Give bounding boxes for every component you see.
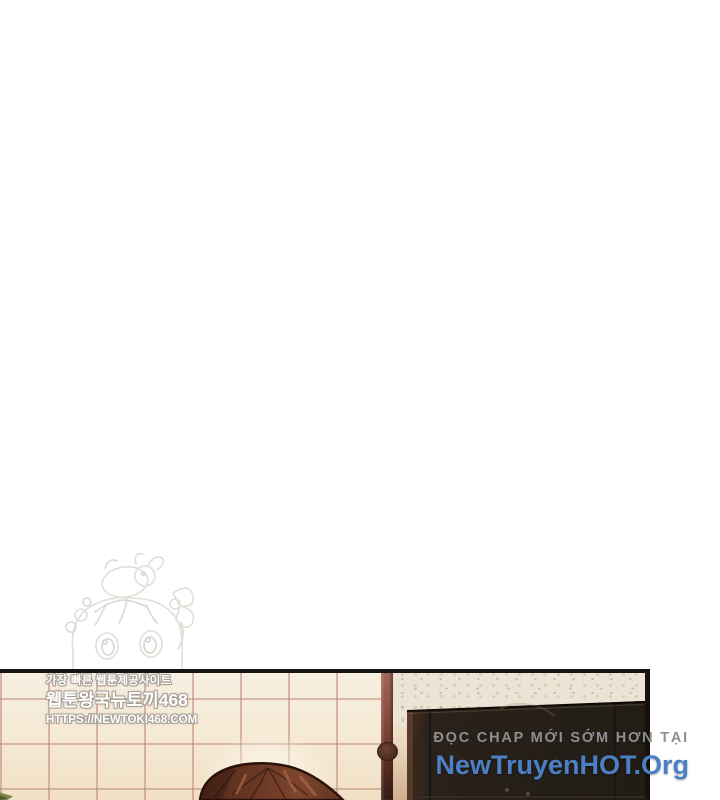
viet-watermark-sitename: NewTruyenHOT.Org <box>433 750 689 780</box>
wood-beam <box>381 672 393 800</box>
beam-joint-knob <box>377 742 398 761</box>
viet-site-watermark: ĐỌC CHAP MỚI SỚM HƠN TẠI NewTruyenHOT.Or… <box>433 729 689 780</box>
korean-watermark-tagline: 가장 빠른 웹툰제공사이트 <box>46 674 206 689</box>
character-hair <box>150 760 380 800</box>
korean-site-watermark: 가장 빠른 웹툰제공사이트 웹툰왕국뉴토끼468 HTTPS://NEWTOKI… <box>46 674 206 727</box>
korean-watermark-url: HTTPS://NEWTOKI468.COM <box>46 713 206 727</box>
viet-watermark-tagline: ĐỌC CHAP MỚI SỚM HƠN TẠI <box>433 729 689 748</box>
cabinet-bottom-seam <box>420 796 645 798</box>
webtoon-reader-page: 가장 빠른 웹툰제공사이트 웹툰왕국뉴토끼468 HTTPS://NEWTOKI… <box>0 0 720 800</box>
cabinet-seam <box>429 712 431 800</box>
cabinet-handle-dot <box>505 788 509 792</box>
korean-watermark-sitename: 웹툰왕국뉴토끼468 <box>46 689 206 711</box>
panel-top-border <box>0 669 650 673</box>
mascot-sketch-watermark <box>35 552 205 672</box>
